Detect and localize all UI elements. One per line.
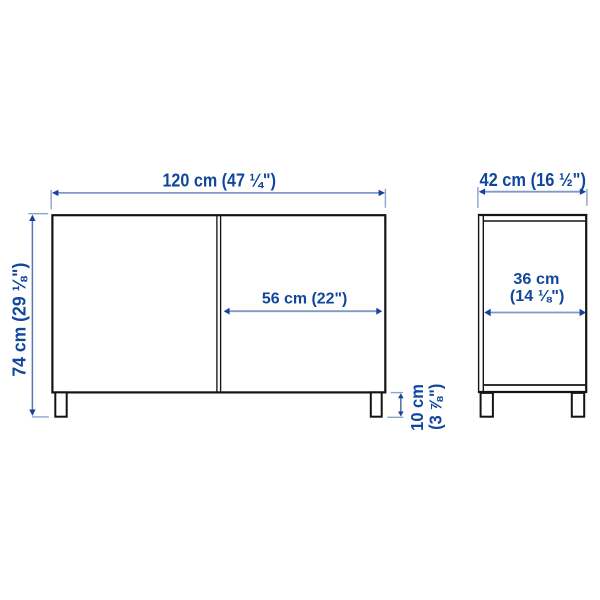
- svg-text:(14 ⅛"): (14 ⅛"): [510, 288, 565, 305]
- svg-text:10 cm: 10 cm: [407, 384, 427, 431]
- svg-text:74 cm (29 ⅛"): 74 cm (29 ⅛"): [9, 263, 29, 377]
- svg-text:120 cm (47 ¼"): 120 cm (47 ¼"): [162, 171, 276, 191]
- svg-text:42 cm (16 ½"): 42 cm (16 ½"): [479, 170, 586, 190]
- svg-text:(3 ⅞"): (3 ⅞"): [426, 384, 446, 430]
- svg-text:36 cm: 36 cm: [513, 271, 559, 288]
- svg-text:56 cm (22"): 56 cm (22"): [262, 290, 348, 307]
